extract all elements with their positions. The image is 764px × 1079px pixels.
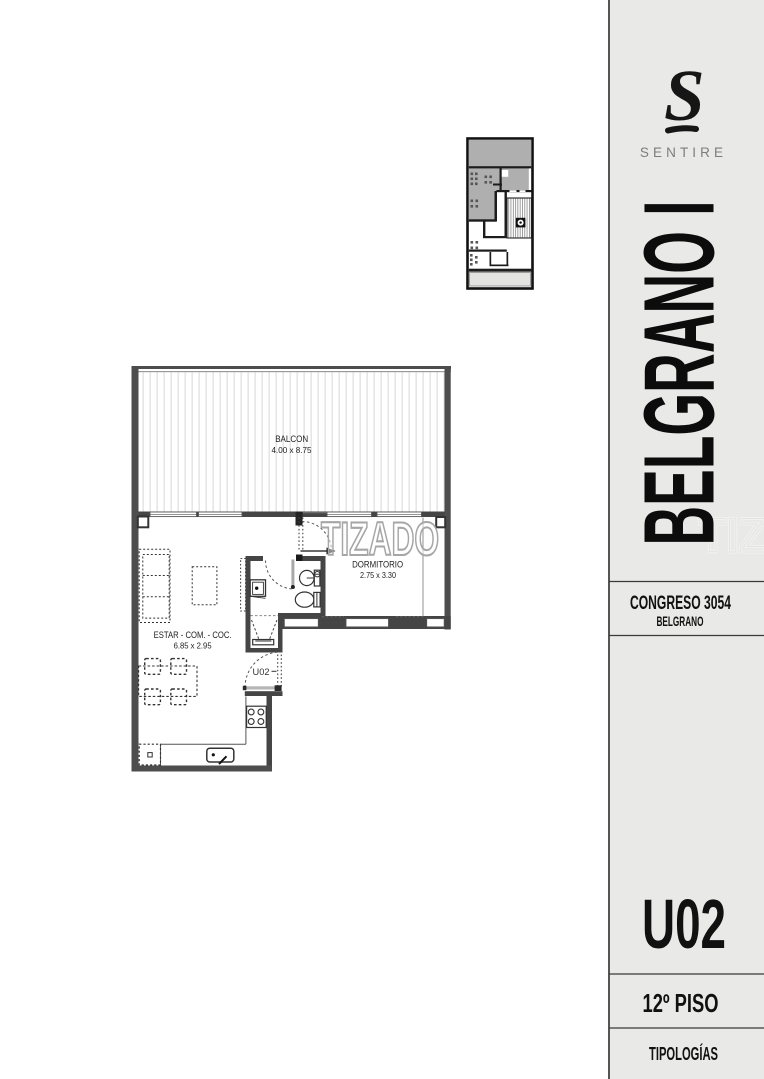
svg-text:TIPOLOGÍAS: TIPOLOGÍAS (649, 1043, 718, 1064)
svg-text:4.00 x 8.75: 4.00 x 8.75 (272, 445, 312, 455)
svg-text:BALCON: BALCON (275, 434, 308, 444)
svg-text:ESTAR - COM. - COC.: ESTAR - COM. - COC. (154, 630, 232, 640)
svg-text:BELGRANO I: BELGRANO I (624, 201, 736, 546)
svg-text:S: S (664, 55, 705, 136)
svg-text:SENTIRE: SENTIRE (640, 145, 727, 160)
svg-text:12º PISO: 12º PISO (643, 990, 719, 1018)
svg-text:6.85 x 2.95: 6.85 x 2.95 (174, 641, 212, 651)
svg-text:BELGRANO: BELGRANO (657, 613, 704, 629)
svg-text:TIZADO: TIZADO (321, 512, 439, 565)
svg-text:2.75 x 3.30: 2.75 x 3.30 (360, 570, 396, 580)
svg-text:U02: U02 (253, 667, 270, 678)
svg-text:CONGRESO 3054: CONGRESO 3054 (630, 592, 731, 614)
svg-text:U02: U02 (642, 885, 726, 963)
